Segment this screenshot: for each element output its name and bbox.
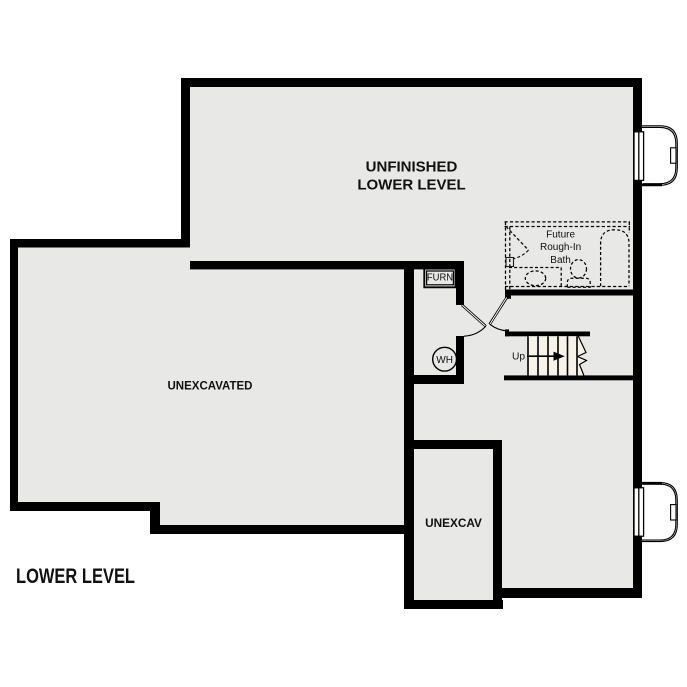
svg-text:Up: Up	[512, 352, 525, 363]
svg-text:UNEXCAVATED: UNEXCAVATED	[168, 381, 253, 393]
svg-text:UNFINISHED: UNFINISHED	[366, 159, 458, 176]
svg-text:WH: WH	[436, 355, 453, 366]
svg-text:Bath: Bath	[550, 255, 571, 266]
svg-text:LOWER LEVEL: LOWER LEVEL	[16, 564, 135, 588]
svg-text:UNEXCAV: UNEXCAV	[425, 516, 482, 530]
svg-text:LOWER LEVEL: LOWER LEVEL	[357, 177, 465, 194]
svg-text:Rough-In: Rough-In	[540, 242, 581, 253]
svg-text:Future: Future	[546, 229, 575, 240]
svg-text:FURN: FURN	[427, 272, 453, 283]
